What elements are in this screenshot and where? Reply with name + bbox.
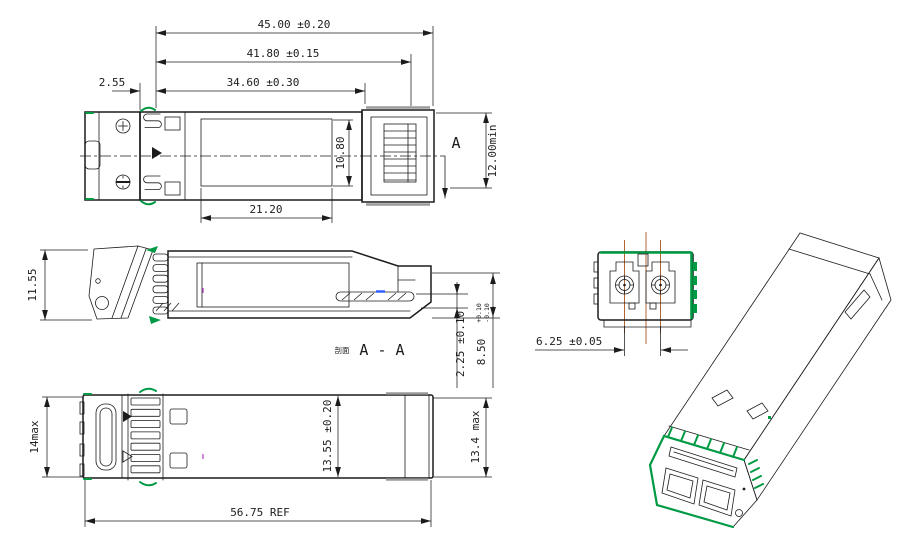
label-area (201, 119, 332, 186)
top-view: A 45.00 ±0.20 41.80 ±0.15 34.60 ±0.30 2.… (80, 18, 499, 223)
dim-2-55: 2.55 (99, 76, 126, 89)
dim-overall-length: 45.00 ±0.20 (258, 18, 331, 31)
dim-12-00-min: 12.00min (486, 125, 499, 178)
dim-8-50: 8.50 (475, 339, 488, 366)
iso-window-2 (747, 403, 768, 419)
top-view-nose-notch (85, 141, 100, 169)
dim-13-55: 13.55 ±0.20 (321, 400, 334, 473)
bail-latch (89, 246, 153, 319)
dim-8-50-tol-plus: +0.10 (475, 303, 483, 323)
ferrule-left (616, 276, 634, 294)
ribbed-ladder (128, 389, 163, 486)
dim-13-4-max: 13.4 max (469, 410, 482, 463)
bottom-view: 13.55 ±0.20 14max 13.4 max 56.75 REF (28, 389, 492, 527)
dim-56-75-ref: 56.75 REF (230, 506, 290, 519)
technical-drawing-canvas: A 45.00 ±0.20 41.80 ±0.15 34.60 ±0.30 2.… (0, 0, 910, 547)
dim-2-25: 2.25 ±0.10 (454, 311, 467, 377)
emi-finger-comb (146, 246, 168, 324)
dim-6-25: 6.25 ±0.05 (536, 335, 602, 348)
ferrule-right (652, 276, 670, 294)
dim-14-max: 14max (28, 420, 41, 453)
iso-side-slot (845, 290, 870, 319)
top-view-bezel (85, 112, 140, 200)
section-title-prefix: 剖面 (335, 345, 350, 355)
orientation-triangle-icon (152, 147, 162, 159)
lc-face-view: 6.25 ±0.05 (535, 232, 697, 356)
section-cavity (197, 263, 349, 307)
section-view: 11.55 (26, 246, 500, 388)
lc-receptacle-slot (80, 394, 122, 479)
dim-11-55: 11.55 (26, 268, 39, 301)
iso-window-1 (712, 390, 733, 406)
iso-side-face (744, 258, 891, 500)
dim-34-60: 34.60 ±0.30 (227, 76, 300, 89)
dim-21-20: 21.20 (249, 203, 282, 216)
contact-pin-section (336, 292, 414, 302)
iso-front-face (650, 436, 757, 527)
dim-10-80: 10.80 (334, 136, 347, 169)
emi-spring-top (144, 114, 162, 128)
section-cut-label: A (451, 134, 460, 152)
section-title: A - A (359, 341, 404, 359)
dim-41-80: 41.80 ±0.15 (247, 47, 320, 60)
section-body (168, 251, 431, 318)
dim-8-50-tol-minus: -0.10 (483, 303, 491, 323)
slotted-screw-icon (116, 175, 130, 189)
drawing-svg: A 45.00 ±0.20 41.80 ±0.15 34.60 ±0.30 2.… (0, 0, 910, 547)
emi-spring-bottom (144, 176, 162, 190)
phillips-screw-icon (116, 119, 130, 133)
isometric-view (650, 233, 891, 527)
